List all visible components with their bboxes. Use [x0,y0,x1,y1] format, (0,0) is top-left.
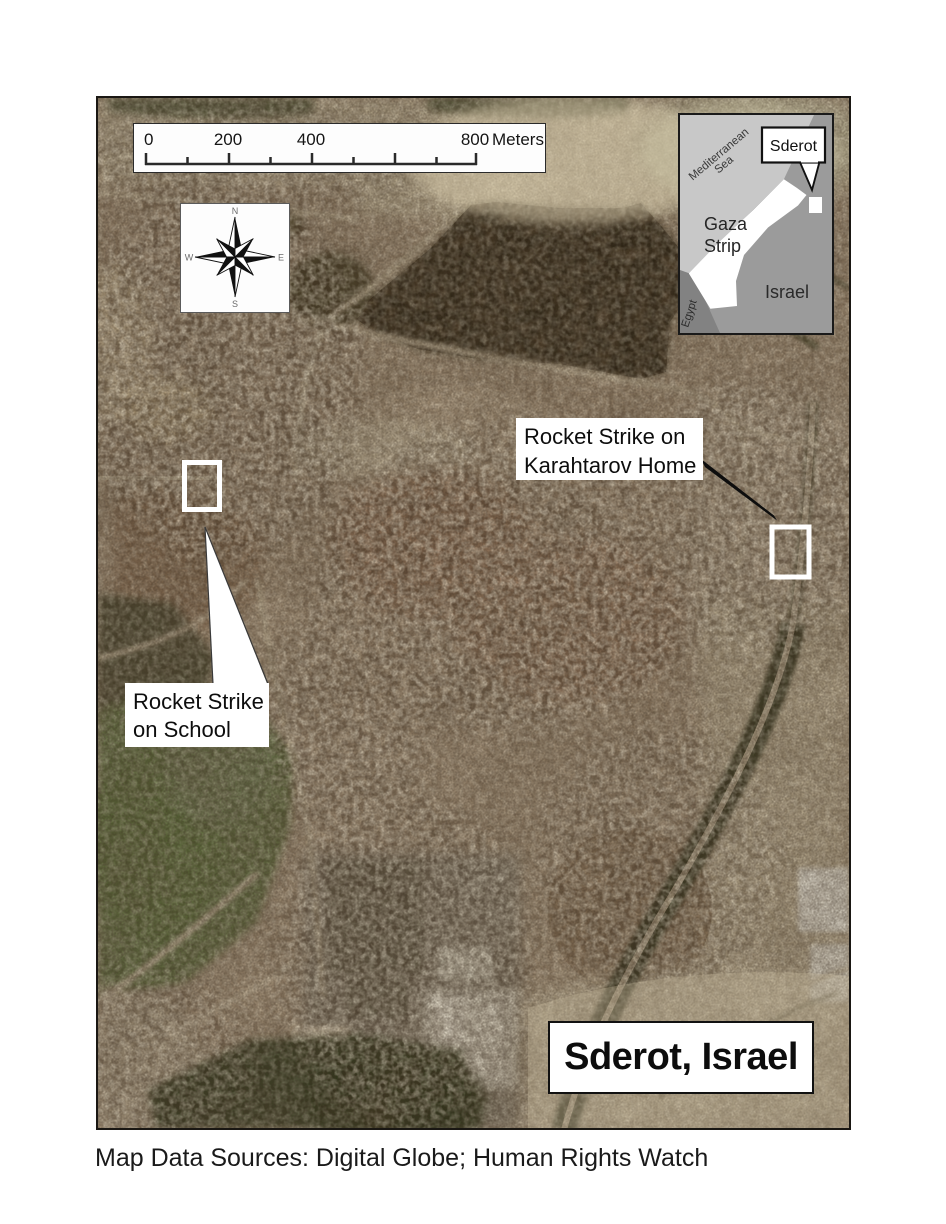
svg-text:800: 800 [461,130,489,149]
svg-text:400: 400 [297,130,325,149]
svg-text:S: S [232,299,238,309]
svg-text:W: W [185,253,194,263]
svg-text:E: E [278,253,284,263]
svg-text:N: N [232,206,239,216]
svg-text:Meters: Meters [492,130,544,149]
svg-text:200: 200 [214,130,242,149]
svg-text:0: 0 [144,130,153,149]
svg-text:Sderot: Sderot [770,138,818,155]
svg-text:Israel: Israel [765,282,809,302]
svg-text:Gaza: Gaza [704,214,748,234]
svg-text:Strip: Strip [704,236,741,256]
